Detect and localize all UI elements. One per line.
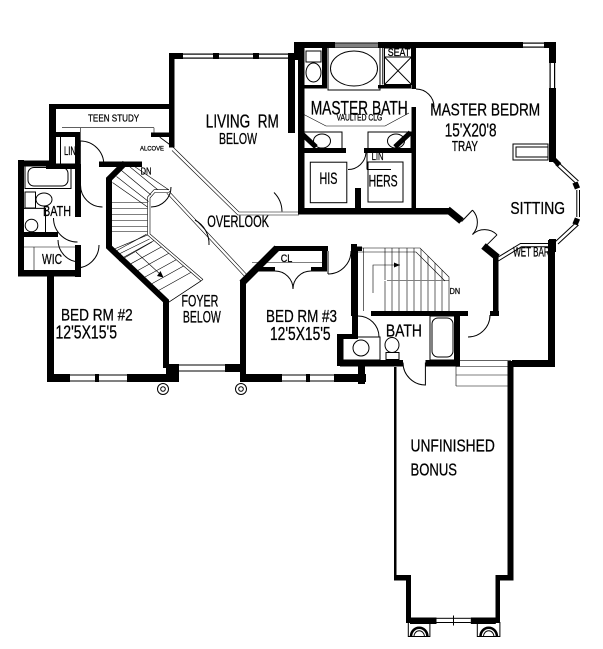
svg-text:HERS: HERS — [369, 172, 398, 191]
svg-text:SITTING: SITTING — [510, 198, 565, 218]
svg-text:WET BAR: WET BAR — [513, 245, 550, 260]
svg-text:TRAY: TRAY — [452, 138, 478, 155]
svg-text:LIN: LIN — [64, 144, 76, 158]
svg-text:MASTER BEDRM: MASTER BEDRM — [430, 100, 540, 120]
svg-text:12'5X15'5: 12'5X15'5 — [270, 323, 331, 344]
svg-text:WIC: WIC — [42, 251, 62, 268]
svg-text:BATH: BATH — [386, 321, 422, 341]
svg-text:OVERLOOK: OVERLOOK — [207, 213, 269, 231]
svg-text:ALCOVE: ALCOVE — [140, 146, 164, 153]
svg-text:DN: DN — [450, 286, 461, 296]
svg-text:LIVING RM: LIVING RM — [206, 110, 279, 131]
svg-text:BATH: BATH — [43, 203, 71, 220]
svg-text:SEAT: SEAT — [388, 47, 411, 59]
svg-text:12'5X15'5: 12'5X15'5 — [56, 322, 118, 343]
svg-text:CL: CL — [281, 253, 293, 265]
svg-text:VAULTED CLG: VAULTED CLG — [337, 113, 383, 123]
svg-text:DN: DN — [141, 167, 152, 178]
svg-text:BELOW: BELOW — [183, 308, 221, 326]
svg-text:UNFINISHED: UNFINISHED — [411, 436, 495, 456]
svg-text:BELOW: BELOW — [219, 131, 258, 148]
svg-text:HIS: HIS — [320, 169, 338, 188]
svg-text:TEEN STUDY: TEEN STUDY — [88, 113, 139, 124]
svg-text:BONUS: BONUS — [411, 459, 458, 479]
svg-text:LIN: LIN — [372, 151, 384, 163]
